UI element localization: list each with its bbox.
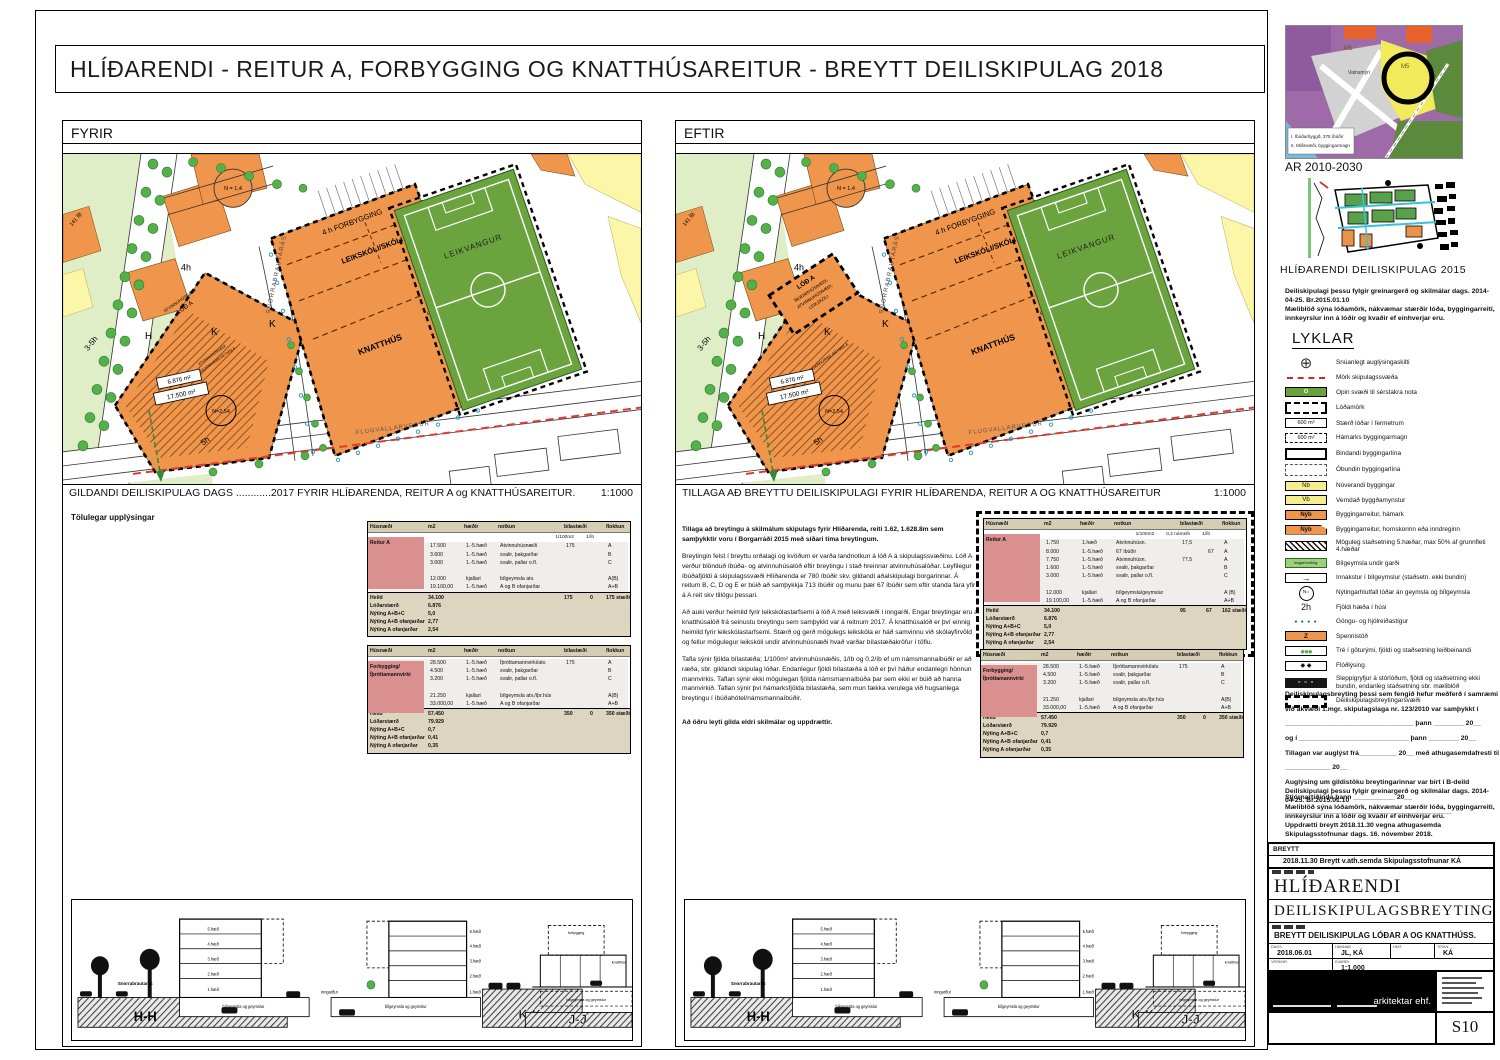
svg-text:4h: 4h [794,263,804,273]
panel-fyrir-label: FYRIR [63,121,641,144]
sheet-number: S10 [1435,1013,1493,1043]
map-label-n14: N = 1,4 [224,186,242,192]
legend-symbol [1285,448,1327,460]
eftir-paragraph: Tafla sýnir fjölda bílastæða; 1/100m² at… [682,655,978,704]
panel-fyrir: FYRIR N = 1,4 [62,120,642,1047]
note-skilmalar: Deiliskipulagi þessu fylgir greinargerð … [1285,288,1497,306]
titleblock-breytt: BREYTT [1269,844,1493,856]
table-summary-row: Nýting A+B+C0,7 [368,726,630,734]
approval-line: við ákvæði 1.mgr. skipulagslaga nr. 123/… [1285,705,1499,714]
firm-address-block [1435,972,1493,1011]
legend-symbol: Z [1285,631,1327,641]
svg-text:forbygging: forbygging [1181,931,1197,935]
map-label-n254: N=2,54 [212,409,230,415]
svg-text:1.hæð: 1.hæð [470,989,482,994]
svg-text:2.hæð: 2.hæð [208,971,220,976]
eftir-paragraph: Að öðru leyti gilda eldri skilmálar og u… [682,718,978,728]
svg-text:N = 1,4: N = 1,4 [837,186,855,192]
svg-text:inngarður: inngarður [321,989,338,994]
legend-list: Snúanlegt auglýsingaskilti Mörk skipulag… [1285,358,1497,712]
legend-symbol [1285,402,1327,414]
svg-text:Snorrabrautarás: Snorrabrautarás [731,981,766,986]
svg-text:J-J: J-J [1181,1012,1200,1027]
table-row-group-name: Forbygging/ Íþróttamannvirki [981,665,1037,717]
firm-name: arkitektar ehf. [1373,996,1431,1007]
map-label-4h: 4h [181,263,191,273]
map-eftir: N = 1,4 4h LÓÐ A ÍBÚÐARHÚSNÆÐI, [676,153,1254,485]
section-marker-k2: K [269,319,276,330]
sheet-subtitle: BREYTT DEILISKIPULAG LÓÐAR A OG KNATTHÚS… [1269,923,1493,944]
caption-eftir-scale: 1:1000 [1214,487,1246,499]
eftir-paragraph: Breytingin felst í breyttu orðalagi og k… [682,552,978,601]
caption-fyrir-scale: 1:1000 [601,487,633,499]
legend-label: Lóðamörk [1336,404,1494,411]
legend-item: Nýb Byggingarreitur, hámark [1285,510,1497,520]
svg-text:2.hæð: 2.hæð [821,971,833,976]
table-summary: Heild34.1001750175 stæðiLóðarstærð6.876N… [368,592,630,636]
table-header: Húsnæðim2hæðirnotkunbílastæðiflokkun [981,650,1243,661]
svg-text:bílgeymsla og geymslur: bílgeymsla og geymslur [566,997,606,1002]
table-eftir-reitur-a: Húsnæðim2hæðirnotkunbílastæðiflokkun 1/1… [983,518,1247,650]
ar-label-m5: M5 [1401,64,1410,70]
svg-text:forbygging: forbygging [568,931,584,935]
title-block: BREYTT 2018.11.30 Breytt v.ath.semda Ski… [1267,842,1495,1045]
legend-symbol [1285,358,1327,368]
svg-text:bílgeymsla og geymslur: bílgeymsla og geymslur [998,1004,1040,1009]
legend-item: Inngarður/bílg. Bílgeymsla undir garði [1285,558,1497,568]
legend-item: Z Spennistöð [1285,631,1497,641]
page-title: HLÍÐARENDI - REITUR A, FORBYGGING OG KNA… [70,56,1164,83]
legend-label: Möguleg staðsetning 5.hæðar, max 50% af … [1336,539,1494,554]
legend-label: Verndað byggðamynstur [1336,497,1494,504]
table-header: Húsnæðim2hæðirnotkunbílastæðiflokkun [984,519,1246,530]
ar-legend-line: II. Miðsvæði, byggingarmagn [1291,142,1350,148]
section-marker-h: H [145,331,152,342]
legend-symbol: Vb [1285,495,1327,505]
firm-logo-band: arkitektar ehf. [1269,972,1493,1013]
legend-item: Tré í göturými, fjöldi og staðsetning le… [1285,646,1497,656]
legend-label: Sleppigryfjur á stórlóðum, fjöldi og sta… [1336,675,1494,690]
section-marker-k1: K [211,327,218,338]
svg-text:N=2,54: N=2,54 [825,409,843,415]
legend-label: Mörk skipulagssvæða [1336,374,1494,381]
tables-heading: Tölulegar upplýsingar [71,513,155,522]
sheet-title-box: HLÍÐARENDI - REITUR A, FORBYGGING OG KNA… [55,45,1265,93]
svg-text:3.hæð: 3.hæð [470,958,482,963]
sidebar: M5 M5 Vatnsmýri I. Íbúðarbyggð, 375 íbúð… [1276,0,1500,1060]
eftir-description: Tillaga að breytingu á skilmálum skipula… [682,525,978,735]
plan-2015-caption: HLÍÐARENDI DEILISKIPULAG 2015 [1280,264,1466,276]
legend-symbol: Nýb [1285,525,1327,535]
table-fyrir-forbygging: Húsnæðim2hæðirnotkunbílastæðiflokkun For… [367,645,631,754]
table-fyrir-reitur-a: Húsnæðim2hæðirnotkunbílastæðiflokkun 1/1… [367,521,631,637]
legend-item: Lóðamörk [1285,402,1497,414]
legend-label: Byggingarreitur, hámark [1336,511,1494,518]
legend-item: O Opin svæði til sérstakra nota [1285,387,1497,397]
approval-line: Deiliskipulagsbreyting þessi sem fengið … [1285,690,1499,699]
project-name: HLÍÐARENDI [1269,875,1493,900]
legend-symbol [1285,617,1327,627]
table-summary-row: Nýting A ofanjarðar0,35 [368,742,630,750]
legend-symbol [1285,464,1327,476]
svg-text:2.hæð: 2.hæð [1083,973,1095,978]
legend-item: Bindandi byggingarlína [1285,448,1497,460]
legend-symbol: N= [1285,588,1327,598]
caption-eftir: TILLAGA AÐ BREYTTU DEILISKIPULAGI FYRIR … [682,487,1246,499]
table-summary-row: Nýting A+B ofanjarðar2,77 [368,618,630,626]
table-summary-row: Nýting A+B ofanjarðar0,41 [981,738,1243,746]
table-summary-row: Heild34.1001750175 stæði [368,594,630,602]
svg-text:2.hæð: 2.hæð [470,973,482,978]
table-summary-row: Nýting A+B+C5,0 [984,623,1246,631]
legend-label: Óbundin byggingarlína [1336,466,1494,473]
legend-item: Vb Verndað byggðamynstur [1285,495,1497,505]
svg-text:knatthús: knatthús [1225,960,1239,965]
svg-text:1.hæð: 1.hæð [208,987,220,992]
svg-text:bílgeymsla og geymslur: bílgeymsla og geymslur [385,1004,427,1009]
table-summary-row: Nýting A+B+C0,7 [981,730,1243,738]
drawing-type: DEILISKIPULAGSBREYTING [1269,900,1493,923]
table-summary-row: Nýting A+B ofanjarðar2,77 [984,631,1246,639]
svg-text:4.hæð: 4.hæð [1083,944,1095,949]
scale-value: 1:1.000 [1335,965,1493,972]
note-maeliblod-2: Mæliblöð sýna lóðamörk, nákvæmar stærðir… [1285,804,1497,822]
legend-label: Byggingarreitur, hornskorinn eða inndreg… [1336,526,1494,533]
svg-text:1.hæð: 1.hæð [821,987,833,992]
legend-item: 2h Fjöldi hæða í húsi [1285,602,1497,612]
legend-symbol: O [1285,387,1327,397]
approval-line: ____________ 20__ [1285,763,1499,772]
plan-2015-map [1300,178,1460,258]
svg-text:bílgeymsla og geymslur: bílgeymsla og geymslur [1179,997,1219,1002]
svg-text:4.hæð: 4.hæð [208,941,220,946]
site-plan-eftir: N = 1,4 4h LÓÐ A ÍBÚÐARHÚSNÆÐI, [676,154,1254,484]
approval-line: Tillagan var auglýst frá__________ 20__ … [1285,749,1499,758]
legend-item: Göngu- og hjólreiðastígur [1285,617,1497,627]
svg-text:K: K [824,327,831,338]
section-name-hh: H-H [134,1009,157,1024]
table-summary: Heild57.4503500350 stæðiLóðarstærð79.929… [981,712,1243,756]
table-header: Húsnæðim2hæðirnotkunbílastæðiflokkun [368,646,630,657]
panel-eftir-label: EFTIR [676,121,1254,144]
legend-label: Opin svæði til sérstakra nota [1336,389,1494,396]
svg-text:knatthús: knatthús [612,960,626,965]
caption-eftir-text: TILLAGA AÐ BREYTTU DEILISKIPULAGI FYRIR … [682,487,1161,499]
table-summary: Heild57.4503500350 stæðiLóðarstærð79.929… [368,708,630,752]
legend-item: Sleppigryfjur á stórlóðum, fjöldi og sta… [1285,675,1497,690]
date-value: 2018.06.01 [1271,950,1332,957]
table-summary-row: Lóðarstærð79.929 [981,722,1243,730]
legend-symbol [1285,373,1327,383]
legend-symbol [1285,678,1327,688]
table-row-group-name: Reitur A [368,537,424,589]
svg-text:3.hæð: 3.hæð [821,956,833,961]
legend-item: Flóðlýsing [1285,661,1497,671]
legend-item: Nb Núverandi byggingar [1285,481,1497,491]
table-row-group-name: Reitur A [984,534,1040,602]
legend-label: Göngu- og hjólreiðastígur [1336,618,1494,625]
table-summary-row: Lóðarstærð6.876 [368,602,630,610]
legend-symbol: 600 m² [1285,418,1327,428]
svg-text:5.hæð: 5.hæð [470,929,482,934]
map-fyrir: N = 1,4 4h ATVINNUHÚSNÆÐI [63,153,641,485]
eftir-paragraph: Að auki verður heimild fyrir leikskólast… [682,608,978,648]
sections-fyrir: Snorrabrautarás 5.hæð 4.hæð 3.hæð 2.hæð … [71,899,633,1041]
caption-fyrir-text: GILDANDI DEILISKIPULAG DAGS ............… [69,487,575,499]
svg-text:5.hæð: 5.hæð [1083,929,1095,934]
legend-symbol: 2h [1285,602,1327,612]
legend-symbol: Nb [1285,481,1327,491]
legend-item: Innakstur í bílgeymslur (staðsetn. ekki … [1285,573,1497,583]
table-summary-row: Lóðarstærð79.929 [368,718,630,726]
legend-label: Bindandi byggingarlína [1336,450,1494,457]
section-street-label: Snorrabrautarás [118,981,153,986]
ar-label-vatnsmyri: Vatnsmýri [1348,70,1370,76]
table-summary-row: Nýting A ofanjarðar0,35 [981,746,1243,754]
legend-item: Snúanlegt auglýsingaskilti [1285,358,1497,368]
svg-text:4.hæð: 4.hæð [821,941,833,946]
legend-label: Nýtingarhlutfall lóðar án geymsla og bíl… [1336,589,1494,596]
svg-text:3.hæð: 3.hæð [1083,958,1095,963]
ar-legend-line: I. Íbúðarbyggð, 375 íbúðir [1291,133,1344,139]
legend-item: 600 m² Stærð lóðar í fermetrum [1285,418,1497,428]
table-summary-row: Lóðarstærð6.876 [984,615,1246,623]
table-summary-row: Nýting A+B+C5,0 [368,610,630,618]
table-summary-row: Nýting A ofanjarðar2,54 [368,626,630,634]
legend-label: Innakstur í bílgeymslur (staðsetn. ekki … [1336,574,1494,581]
legend-label: Tré í göturými, fjöldi og staðsetning le… [1336,647,1494,654]
legend-label: Hámarks byggingarmagn [1336,434,1494,441]
legend-symbol: 600 m² [1285,433,1327,443]
svg-text:4.hæð: 4.hæð [470,944,482,949]
meta-row-2: VERKNR. KVARÐI1:1.000 [1269,959,1493,972]
svg-text:5.hæð: 5.hæð [821,927,833,932]
svg-text:K: K [882,319,889,330]
note-maeliblod: Mæliblöð sýna lóðamörk, nákvæmar stærðir… [1285,306,1497,324]
legend-label: Spennistöð [1336,633,1494,640]
legend-symbol [1285,573,1327,583]
ar-masterplan-map: M5 M5 Vatnsmýri I. Íbúðarbyggð, 375 íbúð… [1285,25,1463,159]
ar-caption: AR 2010-2030 [1285,160,1362,174]
legend-label: Bílgeymsla undir garði [1336,560,1494,567]
section-name-jj: J-J [568,1012,587,1027]
legend-symbol: Nýb [1285,510,1327,520]
legend-item: Nýb Byggingarreitur, hornskorinn eða inn… [1285,525,1497,535]
legend-symbol [1285,646,1327,656]
meta-row: DAGS.2018.06.01 HANNAÐJL, KÁ HNIT. TEIKN… [1269,944,1493,959]
legend-label: Núverandi byggingar [1336,482,1494,489]
changed-table-marquee: Húsnæðim2hæðirnotkunbílastæðiflokkun 1/1… [976,511,1254,657]
table-summary-row: Nýting A+B ofanjarðar0,41 [368,734,630,742]
note-skilmalar-2: Deiliskipulagi þessu fylgir greinargerð … [1285,788,1497,806]
table-summary-row: Nýting A ofanjarðar2,54 [984,639,1246,647]
sections-eftir: Snorrabrautarás 5.hæð 4.hæð 3.hæð 2.hæð … [684,899,1246,1041]
ar-label-m5: M5 [1344,46,1353,52]
legend-item: Möguleg staðsetning 5.hæðar, max 50% af … [1285,539,1497,554]
firm-logo: arkitektar ehf. [1269,972,1435,1011]
site-plan-fyrir: N = 1,4 4h ATVINNUHÚSNÆÐI [63,154,641,484]
table-row-group-name: Forbygging/ Íþróttamannvirki [368,661,424,713]
svg-text:3.hæð: 3.hæð [208,956,220,961]
legend-label: Fjöldi hæða í húsi [1336,604,1494,611]
svg-text:H-H: H-H [747,1009,770,1024]
caption-fyrir: GILDANDI DEILISKIPULAG DAGS ............… [69,487,633,499]
panel-eftir: EFTIR N = 1,4 [675,120,1255,1047]
sheet-number-row: S10 [1269,1013,1493,1043]
svg-text:inngarður: inngarður [934,989,951,994]
legend-symbol [1285,661,1327,671]
svg-text:H: H [758,331,765,342]
legend-item: 600 m² Hámarks byggingarmagn [1285,433,1497,443]
legend-symbol [1285,541,1327,551]
svg-text:5.hæð: 5.hæð [208,927,220,932]
legend-heading: LYKLAR [1292,330,1354,349]
approval-line: og í _____________________________ þann … [1285,734,1499,743]
table-summary: Heild34.1009567162 stæðiLóðarstærð6.876N… [984,605,1246,649]
legend-label: Flóðlýsing [1336,662,1494,669]
svg-text:1.hæð: 1.hæð [1083,989,1095,994]
eftir-paragraph: Tillaga að breytingu á skilmálum skipula… [682,525,978,545]
table-summary-row: Heild34.1009567162 stæði [984,607,1246,615]
legend-item: N= Nýtingarhlutfall lóðar án geymsla og … [1285,588,1497,598]
legend-symbol: Inngarður/bílg. [1285,558,1327,568]
titleblock-revision: 2018.11.30 Breytt v.ath.semda Skipulagss… [1269,856,1493,869]
table-eftir-forbygging: Húsnæðim2hæðirnotkunbílastæðiflokkun For… [980,649,1244,758]
plan-sheet: HLÍÐARENDI - REITUR A, FORBYGGING OG KNA… [0,0,1500,1060]
approval-line: __________________________________ þann … [1285,719,1499,728]
legend-item: Mörk skipulagssvæða [1285,373,1497,383]
legend-label: Stærð lóðar í fermetrum [1336,420,1494,427]
legend-label: Snúanlegt auglýsingaskilti [1336,359,1494,366]
approval-line: Auglýsing um gildistöku breytingarinnar … [1285,778,1499,787]
legend-item: Óbundin byggingarlína [1285,464,1497,476]
uppdraettir-note: Uppdrætti breytt 2018.11.30 vegna athuga… [1285,822,1497,840]
table-header: Húsnæðim2hæðirnotkunbílastæðiflokkun [368,522,630,533]
